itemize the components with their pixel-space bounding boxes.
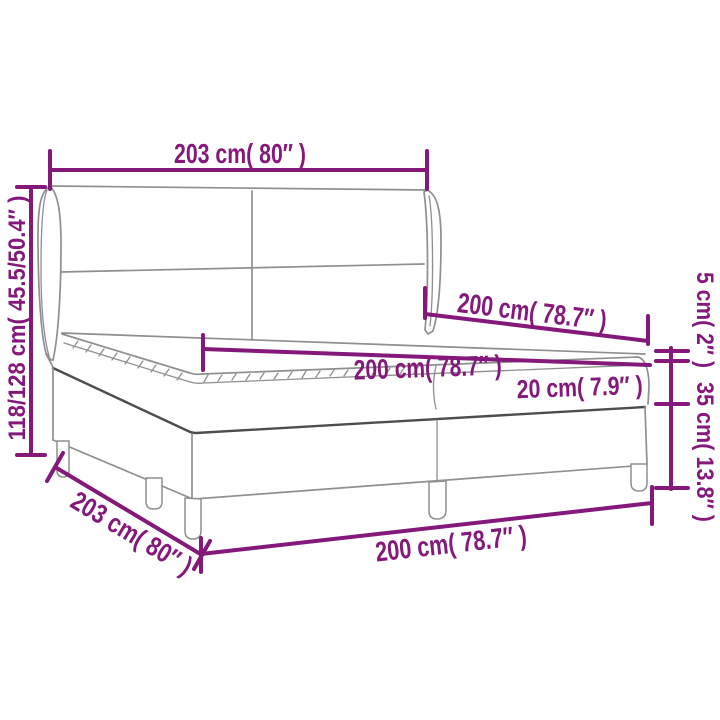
dim-headboard-width: 203 cm( 80″ ) bbox=[50, 138, 427, 189]
dim-length-bottom: 200 cm( 78.7″ ) bbox=[201, 487, 652, 572]
dim-headboard-width-label: 203 cm( 80″ ) bbox=[174, 138, 306, 169]
dimension-annotations: 203 cm( 80″ ) 118/128 cm( 45.5/50.4″ ) 2… bbox=[4, 138, 718, 581]
dim-length-upper: 200 cm( 78.7″ ) bbox=[425, 287, 648, 344]
dim-base-height-label: 35 cm( 13.8″ ) bbox=[691, 382, 718, 522]
dim-total-height-label: 118/128 cm( 45.5/50.4″ ) bbox=[4, 196, 31, 441]
headboard-bottom-edge bbox=[62, 333, 645, 354]
diagram-canvas: 203 cm( 80″ ) 118/128 cm( 45.5/50.4″ ) 2… bbox=[0, 0, 720, 720]
box-right-edge bbox=[645, 407, 647, 464]
bed-leg-corner bbox=[185, 498, 201, 539]
dim-right-heights: 5 cm( 2″ ) 35 cm( 13.8″ ) bbox=[656, 272, 718, 522]
bed-leg-left bbox=[146, 478, 162, 509]
dim-mattress-height-label: 20 cm( 7.9″ ) bbox=[516, 370, 643, 404]
headboard-top-edge bbox=[50, 186, 427, 190]
dim-width-diagonal-label: 203 cm( 80″ ) bbox=[66, 485, 198, 581]
box-bottom-front-edge bbox=[194, 465, 647, 499]
dimension-diagram: 203 cm( 80″ ) 118/128 cm( 45.5/50.4″ ) 2… bbox=[0, 0, 720, 720]
bed-leg-right bbox=[631, 464, 647, 491]
box-bottom-left-edge bbox=[53, 440, 194, 499]
dim-topper-height-label: 5 cm( 2″ ) bbox=[691, 272, 718, 368]
headboard-right-wing-contour bbox=[429, 196, 433, 326]
dim-length-middle-label: 200 cm( 78.7″ ) bbox=[353, 349, 502, 385]
headboard-horizontal-seam bbox=[61, 264, 424, 272]
bed-leg-front bbox=[429, 481, 446, 519]
